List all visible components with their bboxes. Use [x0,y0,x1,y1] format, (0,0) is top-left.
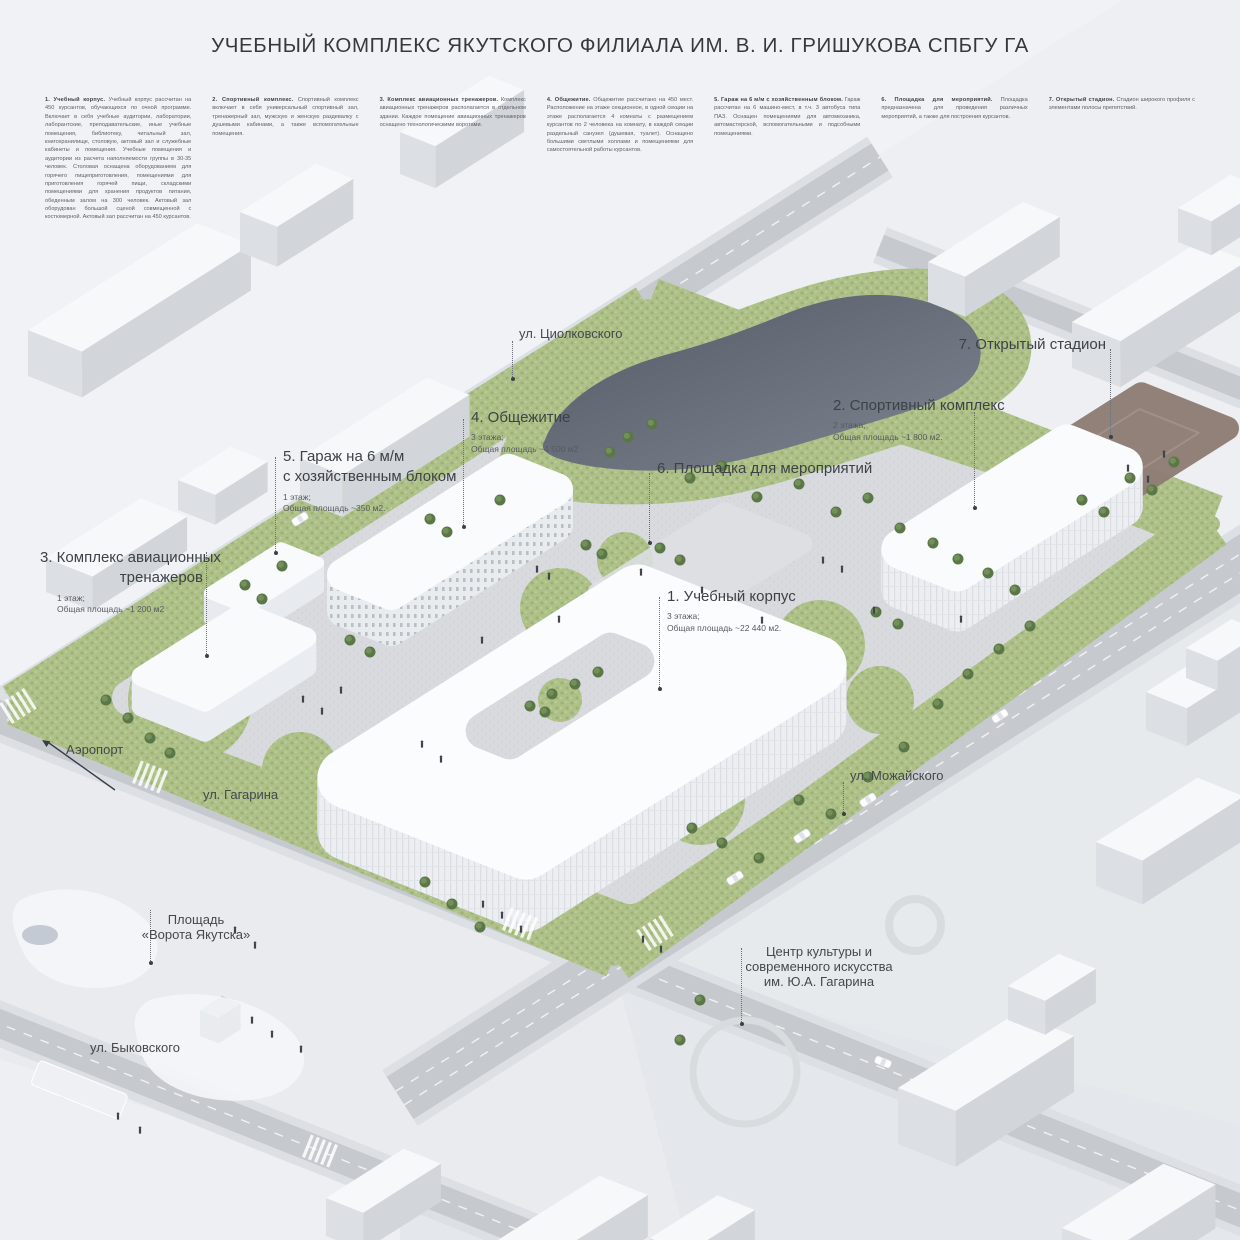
person-figure [520,926,523,929]
tree [1100,508,1106,514]
person-figure [1163,451,1166,454]
tree [900,743,906,749]
person-figure [1163,453,1165,458]
tree [278,562,284,568]
tree [366,648,372,654]
tree [864,773,870,779]
tree [571,680,577,686]
legend-item-1: 1. Учебный корпус. Учебный корпус рассчи… [45,96,191,222]
legend-heading: 1. Учебный корпус. [45,97,105,103]
person-figure [302,696,305,703]
person-figure [558,616,561,623]
tree [241,581,247,587]
tree [346,636,352,642]
person-figure [234,927,237,934]
person-figure [841,566,844,569]
tree [1126,474,1132,480]
person-figure [482,903,484,908]
legend-item-6: 6. Площадка для мероприятий. Площадка пр… [881,96,1027,222]
person-figure [117,1113,120,1120]
tree [864,494,870,500]
tree [964,670,970,676]
person-figure [841,566,844,573]
person-figure [421,743,423,748]
person-figure [536,568,538,573]
masterplan-poster: { "title": "УЧЕБНЫЙ КОМПЛЕКС ЯКУТСКОГО Ф… [0,0,1240,1240]
legend-body: Общежитие рассчитано на 450 мест. Распол… [547,97,693,153]
tree [827,810,833,816]
legend-heading: 4. Общежитие. [547,97,591,103]
person-figure [873,609,875,614]
tree [1011,586,1017,592]
tree [443,528,449,534]
person-figure [139,1127,142,1134]
person-figure [1127,465,1130,472]
tree [548,690,554,696]
person-figure [302,698,304,703]
person-figure [548,573,551,576]
tree [541,708,547,714]
legend-heading: 3. Комплекс авиационных тренажеров. [380,97,499,103]
person-figure [1127,465,1130,468]
tree [624,433,630,439]
tree [676,556,682,562]
person-figure [421,741,424,748]
person-figure [271,1031,274,1038]
tree [476,923,482,929]
person-figure [440,758,442,763]
person-figure [841,568,843,573]
tree [448,900,454,906]
person-figure [321,708,324,715]
tree [934,700,940,706]
person-figure [234,929,236,934]
person-figure [482,901,485,908]
person-figure [340,687,343,694]
person-figure [960,618,962,623]
legend-body: Учебный корпус рассчитан на 450 курсанто… [45,97,191,220]
person-figure [642,936,645,939]
tree [582,541,588,547]
person-figure [300,1046,303,1053]
person-figure [481,637,484,644]
person-figure [321,708,324,711]
tree [1170,458,1176,464]
person-figure [548,575,550,580]
tree [526,702,532,708]
person-figure [873,607,876,610]
person-figure [340,687,343,690]
person-figure [558,616,561,619]
legend-item-5: 5. Гараж на 6 м/м с хозяйственным блоком… [714,96,860,222]
person-figure [660,948,662,953]
person-figure [501,912,504,915]
tree [598,550,604,556]
person-figure [822,557,825,564]
person-figure [822,559,824,564]
tree [755,854,761,860]
tree [954,555,960,561]
person-figure [321,710,323,715]
tree [718,462,724,468]
person-figure [254,942,257,949]
tree [896,524,902,530]
person-figure [481,637,484,640]
tree [1026,622,1032,628]
person-figure [1127,467,1129,472]
legend-heading: 2. Спортивный комплекс. [212,97,293,103]
person-figure [340,689,342,694]
person-figure [501,912,504,919]
person-figure [300,1046,303,1049]
person-figure [520,926,523,933]
tree [426,515,432,521]
legend-heading: 5. Гараж на 6 м/м с хозяйственным блоком… [714,97,843,103]
person-figure [251,1019,253,1024]
tree [995,645,1001,651]
tree [686,474,692,480]
tree [102,696,108,702]
person-figure [501,914,503,919]
tree [718,839,724,845]
person-figure [1147,476,1150,483]
person-figure [822,557,825,560]
tree [1078,496,1084,502]
tree [648,420,654,426]
person-figure [481,639,483,644]
legend-item-4: 4. Общежитие. Общежитие рассчитано на 45… [547,96,693,222]
person-figure [642,938,644,943]
person-figure [440,756,443,763]
person-figure [117,1115,119,1120]
person-figure [701,589,703,594]
person-figure [536,566,539,569]
person-figure [251,1017,254,1020]
person-figure [1147,476,1150,479]
legend-heading: 6. Площадка для мероприятий. [881,97,992,103]
tree [929,539,935,545]
person-figure [271,1031,274,1034]
legend-item-3: 3. Комплекс авиационных тренажеров. Комп… [380,96,526,222]
person-figure [701,587,704,590]
park-pond [22,925,58,945]
legend: 1. Учебный корпус. Учебный корпус рассчи… [0,96,1240,222]
person-figure [254,944,256,949]
tree [688,824,694,830]
tree [795,796,801,802]
tree [606,448,612,454]
person-figure [1163,451,1166,458]
person-figure [536,566,539,573]
tree [656,544,662,550]
tree [496,496,502,502]
person-figure [440,756,443,759]
legend-item-2: 2. Спортивный комплекс. Спортивный компл… [212,96,358,222]
person-figure [482,901,485,904]
tree [676,1036,682,1042]
person-figure [701,587,704,594]
person-figure [558,618,560,623]
tree [166,749,172,755]
person-figure [1147,478,1149,483]
tree [795,480,801,486]
page-title: УЧЕБНЫЙ КОМПЛЕКС ЯКУТСКОГО ФИЛИАЛА ИМ. В… [0,34,1240,58]
person-figure [660,946,663,949]
person-figure [640,571,642,576]
tree [594,668,600,674]
person-figure [302,696,305,699]
tree [124,714,130,720]
grass-patch [846,666,914,734]
person-figure [960,616,963,619]
person-figure [251,1017,254,1024]
person-figure [548,573,551,580]
tree [146,734,152,740]
tree [984,569,990,575]
person-figure [520,928,522,933]
person-figure [761,617,764,624]
person-figure [660,946,663,953]
person-figure [761,617,764,620]
tree [1148,486,1154,492]
person-figure [117,1113,120,1116]
legend-item-7: 7. Открытый стадион. Стадион широкого пр… [1049,96,1195,222]
tree [832,508,838,514]
tree [753,493,759,499]
person-figure [960,616,963,623]
person-figure [421,741,424,744]
person-figure [139,1127,142,1130]
person-figure [640,569,643,576]
person-figure [640,569,643,572]
legend-heading: 7. Открытый стадион. [1049,97,1115,103]
person-figure [642,936,645,943]
person-figure [300,1048,302,1053]
person-figure [873,607,876,614]
tree [421,878,427,884]
person-figure [234,927,237,930]
tree [258,595,264,601]
person-figure [271,1033,273,1038]
person-figure [761,619,763,624]
person-figure [254,942,257,945]
tree [894,620,900,626]
person-figure [139,1129,141,1134]
tree [696,996,702,1002]
